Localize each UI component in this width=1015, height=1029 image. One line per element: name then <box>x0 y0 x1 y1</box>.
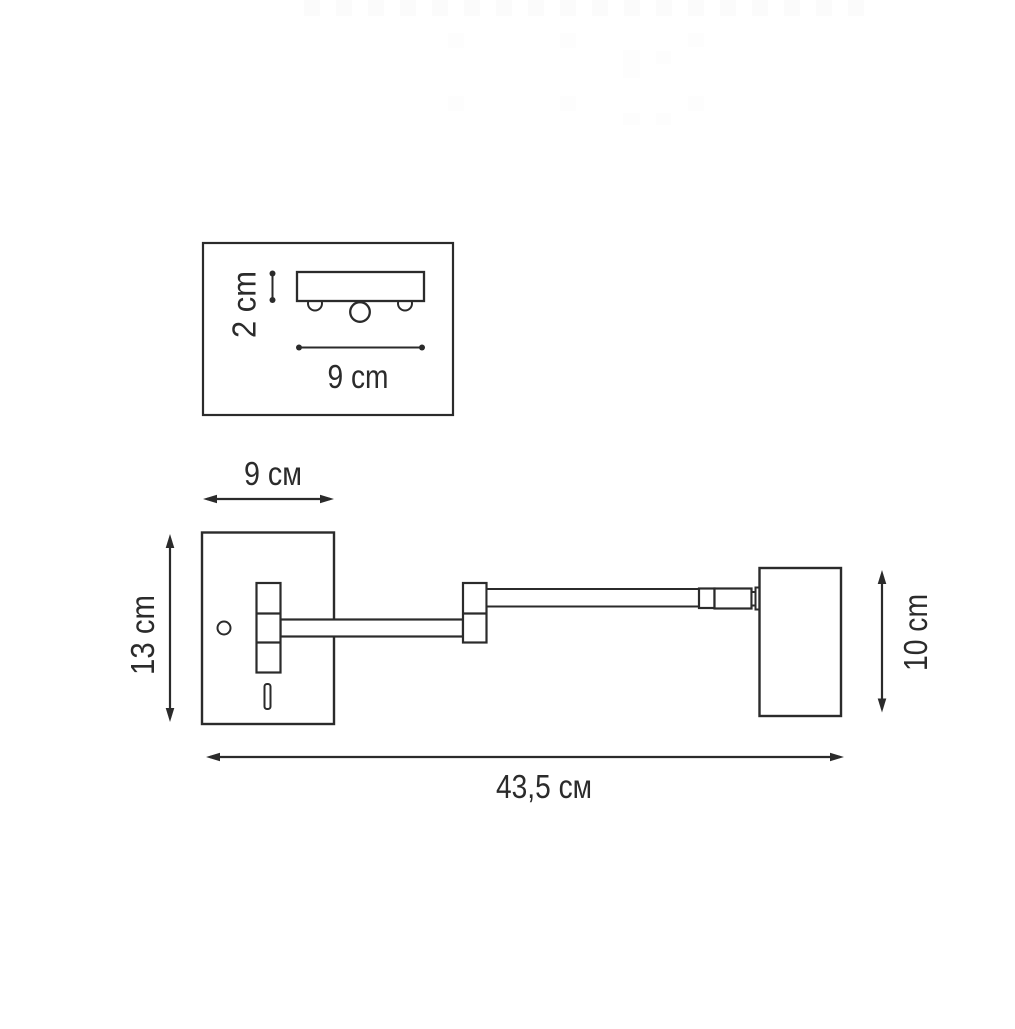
svg-text:2 cm: 2 cm <box>226 271 263 338</box>
svg-text:9 cm: 9 cm <box>328 358 389 395</box>
svg-text:10 cm: 10 cm <box>897 594 934 671</box>
svg-text:43,5 см: 43,5 см <box>496 768 592 805</box>
svg-text:9 см: 9 см <box>244 455 302 492</box>
svg-text:13 cm: 13 cm <box>124 595 161 675</box>
